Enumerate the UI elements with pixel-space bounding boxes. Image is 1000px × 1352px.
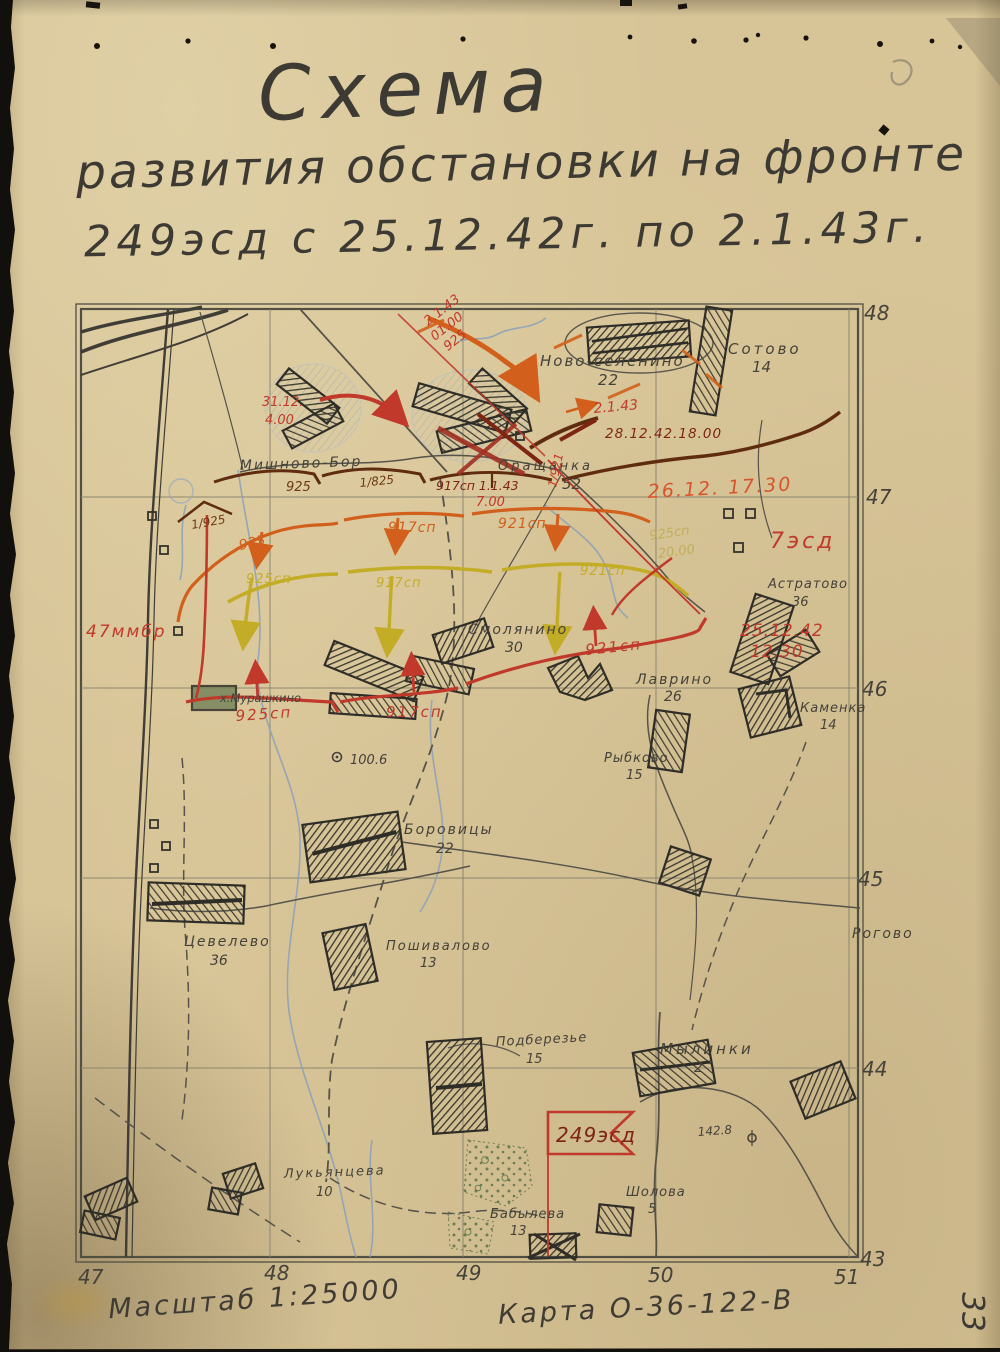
ann-925-brn: 925 [286, 480, 311, 495]
grid-bottom-47: 47 [78, 1265, 104, 1289]
ann-917-yel: 917сп [376, 576, 421, 591]
label-borovitsy-num: 22 [436, 841, 454, 857]
ann-3112: 31.12. [262, 395, 303, 410]
ann-921-red: 921сп [585, 635, 643, 659]
label-babyleva-num: 13 [510, 1224, 527, 1239]
label-lukyantseva-num: 10 [316, 1185, 333, 1200]
corner-fold [892, 18, 1000, 86]
ann-925-yel: 925сп [246, 572, 291, 587]
ann-925-red: 925сп [235, 703, 293, 725]
grid-right-48: 48 [864, 301, 889, 325]
label-sholova-num: 5 [648, 1202, 656, 1217]
ann-400: 4.00 [265, 413, 294, 428]
ann-925-kha: 925сп [648, 523, 691, 544]
label-kamenka-num: 14 [820, 718, 837, 733]
railway-lines [81, 307, 248, 1257]
ann-917-org: 917сп [388, 520, 437, 536]
label-orashchanka-num: 52 [562, 475, 581, 493]
grid-right-45: 45 [858, 867, 883, 891]
label-orashchanka: Оращанка [498, 459, 593, 474]
label-sotovo: Сотово [728, 340, 802, 358]
label-novoselenino: Ново-селенино [540, 352, 685, 370]
page-title: Схема [257, 39, 559, 138]
grid-right-46: 46 [862, 677, 887, 701]
ann-251242: 25.12.42 [740, 621, 824, 641]
ann-47mmbr: 47ммбр [86, 622, 167, 642]
label-rogovo: Рогово [852, 926, 914, 942]
label-kamenka: Каменка [800, 701, 866, 716]
grid-bottom-49: 49 [456, 1261, 481, 1285]
label-borovitsy: Боровицы [404, 822, 494, 838]
label-smolyanino-num: 30 [505, 640, 523, 656]
grid-right-47: 47 [866, 485, 892, 509]
ann-700: 7.00 [476, 495, 505, 510]
ann-2612-1730: 26.12. 17.30 [647, 473, 793, 503]
label-podberezye-num: 15 [526, 1052, 543, 1067]
label-astratovo: Астратово [767, 577, 848, 592]
label-height-100: 100.6 [350, 753, 387, 768]
label-height-142: 142.8 [697, 1123, 733, 1139]
scanned-map-page: 48 47 46 45 44 43 47 48 49 50 51 Ново-се… [0, 0, 1000, 1352]
label-mylinki: Мылинки [660, 1040, 754, 1058]
ann-1925: 1/925 [190, 512, 226, 532]
label-poshivalovo-num: 13 [420, 956, 437, 971]
label-tsevelevo: Цевелево [184, 934, 271, 950]
ann-921-yel: 921сп [580, 564, 625, 579]
label-tsevelevo-num: 36 [210, 953, 228, 969]
label-poshivalovo: Пошивалово [386, 939, 492, 954]
label-podberezye: Подберезье [495, 1030, 587, 1050]
grid-bottom-51: 51 [834, 1265, 859, 1289]
grid-right-44: 44 [862, 1057, 887, 1081]
label-novoselenino-num: 22 [598, 371, 619, 389]
map-canvas: 48 47 46 45 44 43 47 48 49 50 51 Ново-се… [0, 0, 1000, 1352]
label-lavrino-num: 26 [664, 689, 682, 705]
ann-917-1143: 917сп 1.1.43 [436, 478, 519, 493]
ann-2143-mid: 2.1.43 [593, 397, 639, 417]
grid-bottom-50: 50 [648, 1263, 673, 1287]
label-sholova: Шолова [626, 1185, 686, 1200]
ann-249esd: 249эсд [556, 1123, 636, 1147]
ann-1230: 12.30 [750, 642, 804, 662]
grid-right-43: 43 [860, 1247, 885, 1271]
label-sotovo-num: 14 [752, 358, 771, 376]
ann-7esd: 7эсд [770, 529, 835, 554]
label-babyleva: Бабылева [490, 1207, 565, 1222]
label-rybkovo-num: 15 [626, 768, 643, 783]
page-number: 33 [954, 1292, 990, 1331]
ann-917-red: 917сп [386, 703, 443, 721]
ann-921-org: 921сп [498, 516, 547, 532]
label-mylinki-num: 2 [694, 1060, 703, 1076]
label-rybkovo: Рыбково [604, 751, 669, 766]
label-astratovo-num: 36 [792, 595, 809, 610]
ann-925-org: 925 [238, 533, 268, 554]
label-smolyanino: Смолянино [468, 622, 568, 638]
ann-1825: 1/825 [359, 472, 395, 490]
ann-281242: 28.12.42.18.00 [605, 426, 722, 442]
label-lavrino: Лаврино [635, 672, 713, 688]
ann-2000-kha: 20.00 [657, 542, 696, 562]
